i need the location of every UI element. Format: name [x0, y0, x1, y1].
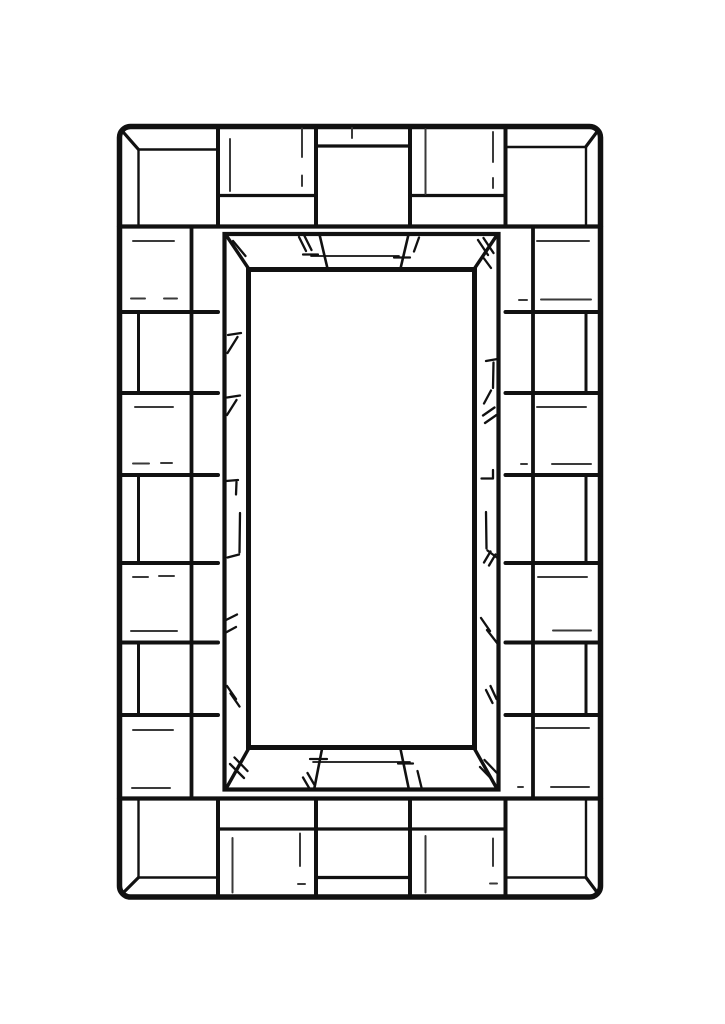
mirror-frame-drawing: Tiled mirror frame line drawing	[0, 0, 725, 1024]
tile-grid	[119, 127, 601, 896]
hatch-right-face	[481, 359, 498, 703]
bottom-tile-dashes	[233, 834, 498, 893]
inner-frame-outer-rect	[225, 234, 499, 790]
mirror-surface	[249, 270, 475, 748]
bevel-hatch-marks	[224, 236, 498, 790]
bottom-band-strips	[218, 829, 506, 878]
inner-frame-corner-diagonals	[227, 237, 496, 788]
bevel-seam-lines	[315, 235, 409, 788]
hatch-top-face	[233, 236, 494, 268]
coloring-page: Tiled mirror frame line drawing	[0, 0, 725, 1024]
paper-background	[0, 0, 725, 1024]
top-tile-dashes	[230, 128, 493, 194]
right-tile-dashes	[518, 241, 591, 787]
bevel-seams	[303, 235, 413, 788]
bevel-mid-ticks	[303, 255, 413, 764]
bottom-band-dividers	[218, 799, 506, 897]
outer-corner-bevels	[124, 133, 597, 892]
bevel-mid-lines	[311, 256, 410, 762]
side-strip-lines	[192, 227, 534, 799]
tile-sketch-dashes	[131, 128, 591, 893]
left-row-dividers	[119, 312, 218, 715]
inner-frame	[225, 234, 499, 790]
top-band-strips	[218, 146, 506, 196]
top-band-dividers	[218, 127, 506, 227]
